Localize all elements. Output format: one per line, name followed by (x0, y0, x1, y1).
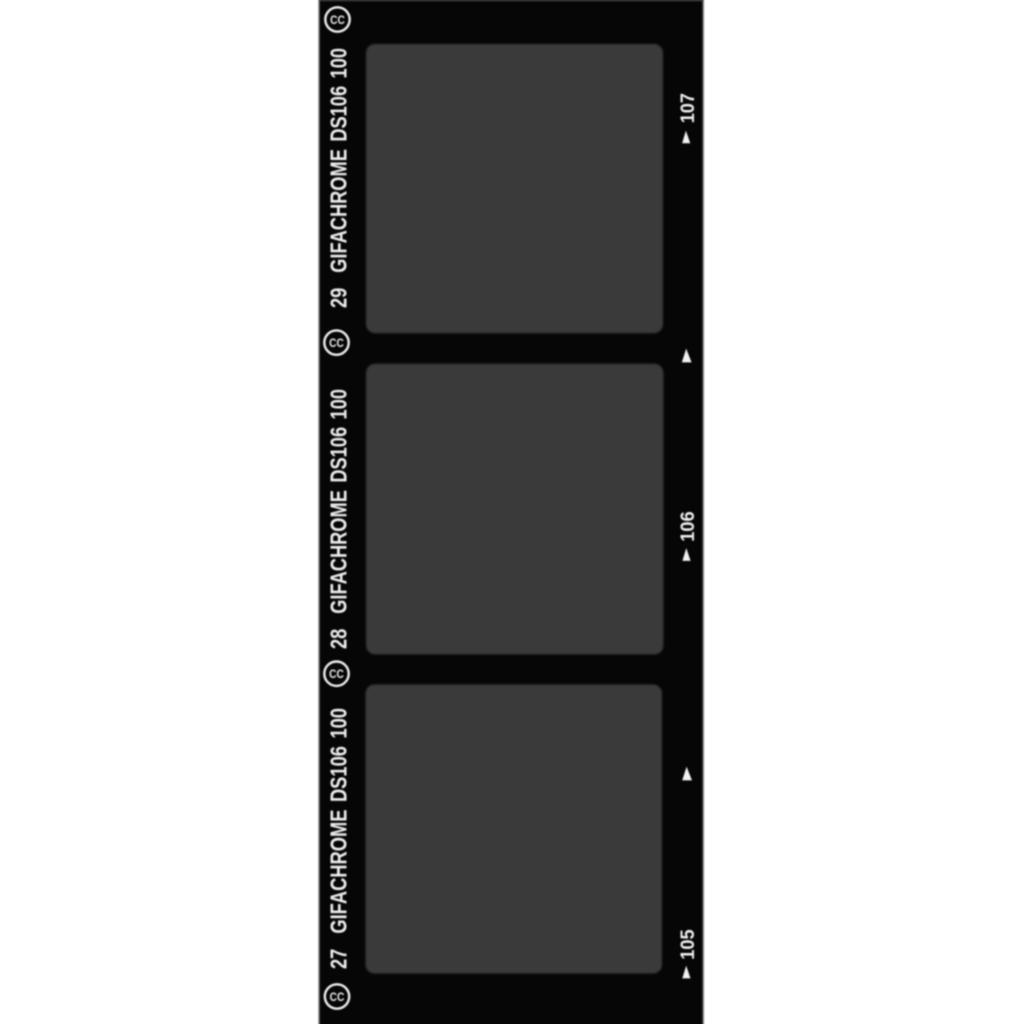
svg-text:CC: CC (329, 336, 344, 350)
svg-text:107: 107 (677, 93, 699, 123)
svg-text:105: 105 (677, 929, 699, 959)
svg-text:27 GIFACHROME DS106 100: 27 GIFACHROME DS106 100 (326, 708, 352, 969)
svg-text:CC: CC (330, 13, 345, 27)
svg-text:CC: CC (329, 667, 344, 681)
svg-text:CC: CC (330, 990, 345, 1004)
svg-text:28 GIFACHROME DS106 100: 28 GIFACHROME DS106 100 (326, 389, 352, 649)
svg-text:29 GIFACHROME DS106 100: 29 GIFACHROME DS106 100 (326, 48, 352, 308)
svg-text:106: 106 (677, 511, 699, 541)
